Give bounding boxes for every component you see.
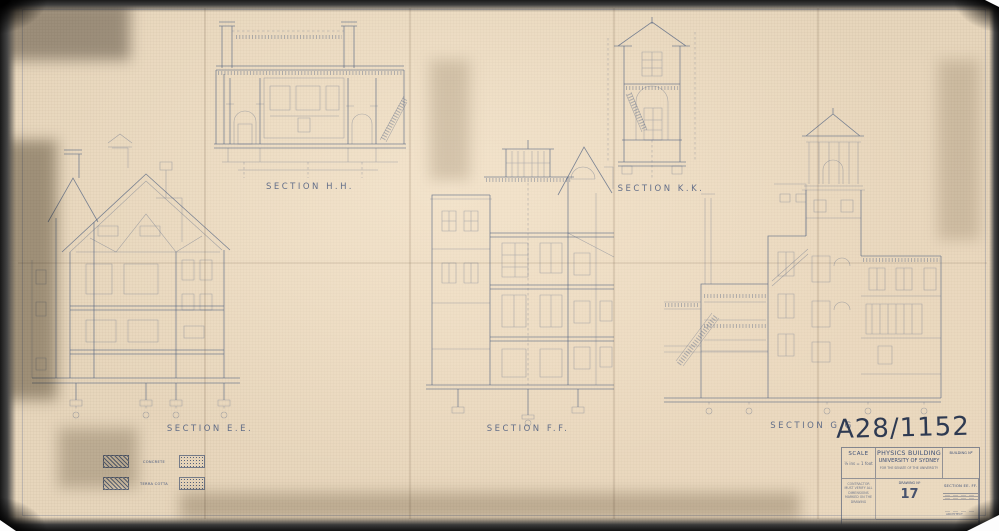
building-number-cell: BUILDING Nº: [943, 448, 979, 479]
terracotta-stipple-swatch: [179, 477, 205, 490]
client-name: UNIVERSITY OF SYDNEY: [876, 458, 942, 464]
photo-edge-right: [989, 0, 999, 531]
scan-background-corner: [967, 515, 999, 531]
concrete-stipple-swatch: [179, 455, 205, 468]
blueprint-sheet: SECTION H.H. SECTION K.K. SECTION E.E. S…: [0, 0, 999, 531]
stain: [938, 60, 980, 240]
scale-label: SCALE: [842, 451, 875, 457]
photo-edge-top: [0, 0, 999, 12]
project-title-cell: PHYSICS BUILDING UNIVERSITY OF SYDNEY FO…: [876, 448, 943, 479]
contractor-note-cell: CONTRACTOR MUST VERIFY ALL DIMENSIONS MA…: [842, 479, 876, 520]
drawing-number: 17: [876, 487, 943, 502]
photo-edge-left: [0, 0, 16, 531]
photo-corner: [0, 0, 48, 34]
section-hh-label: SECTION H.H.: [250, 182, 370, 192]
legend-label: CONCRETE: [134, 460, 174, 464]
archive-number-handwritten: A28/1152: [836, 411, 993, 445]
drawing-number-cell: DRAWING Nº 17: [876, 479, 943, 520]
drawing-number-label: DRAWING Nº: [876, 481, 943, 485]
photo-edge-bottom: [0, 517, 999, 531]
stain: [58, 428, 138, 488]
client-subline: FOR THE SENATE OF THE UNIVERSITY: [876, 466, 942, 470]
scan-background-corner: [0, 520, 16, 531]
scale-value: ⅛ ins = 1 foot: [842, 461, 875, 466]
scale-cell: SCALE ⅛ ins = 1 foot: [842, 448, 876, 479]
sheet-title-cell: SECTION EE. FF. GG. (HH. KK): [943, 479, 979, 494]
section-ee-drawing: [28, 110, 243, 424]
section-gg-drawing: [656, 106, 946, 425]
section-ff-label: SECTION F.F.: [468, 424, 588, 434]
section-ee-label: SECTION E.E.: [150, 424, 270, 434]
project-name: PHYSICS BUILDING: [876, 450, 942, 457]
scan-background-corner: [985, 0, 999, 7]
stain: [180, 492, 800, 520]
stain: [430, 60, 470, 180]
section-kk-label: SECTION K.K.: [606, 184, 716, 194]
legend-label: TERRA COTTA: [134, 482, 174, 486]
